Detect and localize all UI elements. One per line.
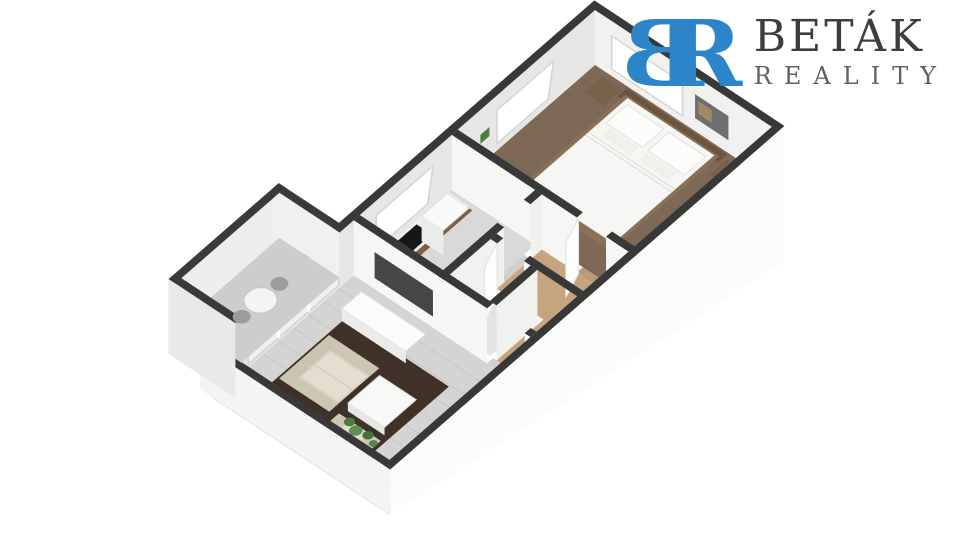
br-monogram-icon: B R [622,4,740,104]
logo-subtitle: REALITY [754,62,948,90]
floor-plan-page: B R BETÁK REALITY [0,0,958,539]
monogram-letter-r: R [666,4,742,104]
logo-name: BETÁK [754,14,948,60]
logo-text: BETÁK REALITY [754,4,948,90]
betak-reality-logo: B R BETÁK REALITY [622,4,948,104]
